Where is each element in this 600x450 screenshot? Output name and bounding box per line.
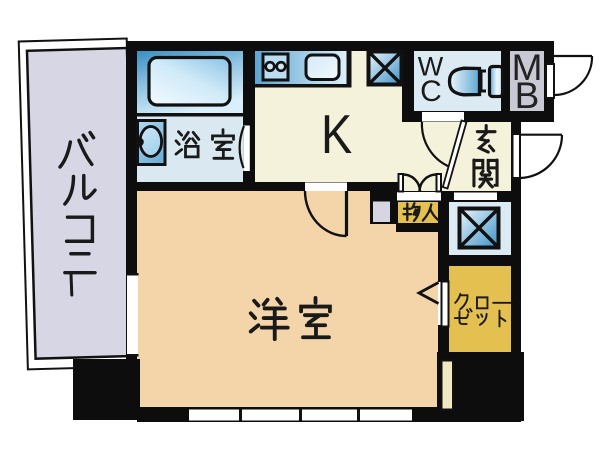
svg-text:B: B <box>515 75 540 116</box>
svg-text:K: K <box>321 103 352 164</box>
svg-text:C: C <box>420 75 442 108</box>
